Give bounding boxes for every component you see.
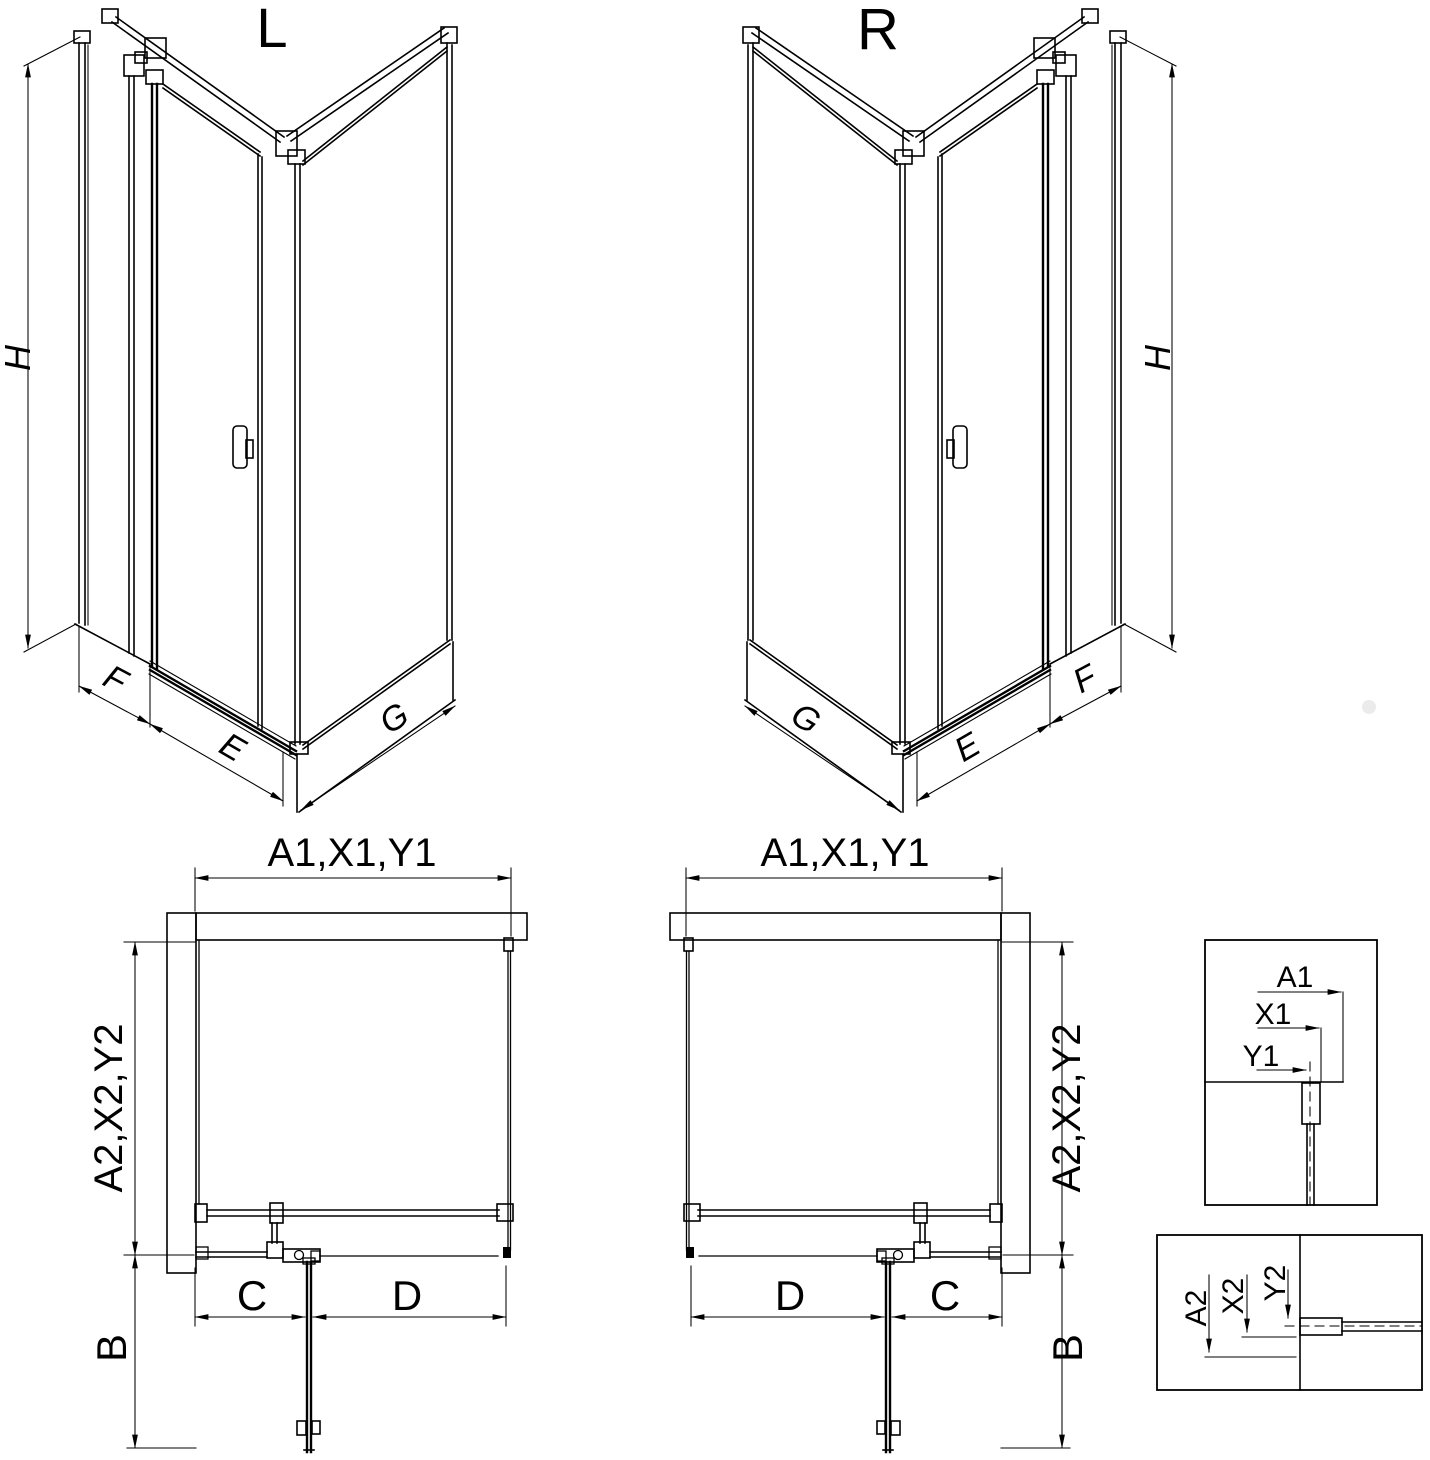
dim-g-left: G — [373, 695, 415, 741]
detail-view-vertical: A2 X2 Y2 — [1157, 1235, 1422, 1390]
plan-right-c-label: C — [930, 1272, 960, 1319]
plan-right-b-label: B — [1044, 1334, 1091, 1362]
plan-right-depth-label: A2,X2,Y2 — [1045, 1023, 1089, 1192]
dim-e-left: E — [213, 725, 252, 769]
dim-h-right: H — [1137, 344, 1178, 371]
dim-h-left: H — [0, 344, 38, 371]
drawing-canvas: A1 X1 Y1 A2 X2 Y2 L H F E G R H F E G A1… — [0, 0, 1430, 1460]
plan-right-d-label: D — [775, 1272, 805, 1319]
plan-left-depth-label: A2,X2,Y2 — [87, 1023, 131, 1192]
iso-view-right-graphics — [743, 9, 1176, 812]
plan-right-width-label: A1,X1,Y1 — [760, 831, 929, 875]
dim-e-right: E — [948, 725, 987, 769]
plan-left-c-label: C — [237, 1272, 267, 1319]
detail-view-horizontal: A1 X1 Y1 — [1205, 940, 1377, 1205]
shower-enclosure-technical-drawing: A1 X1 Y1 A2 X2 Y2 L H F E G R H F E G A1… — [0, 0, 1430, 1460]
dim-g-right: G — [785, 695, 827, 741]
dim-f-left: F — [97, 658, 135, 702]
detail-bottom-label-a2: A2 — [1180, 1290, 1213, 1327]
detail-top-label-y1: Y1 — [1243, 1040, 1280, 1073]
detail-bottom-label-x2: X2 — [1217, 1278, 1250, 1315]
iso-view-left — [24, 9, 457, 812]
plan-view-right-graphics — [670, 868, 1073, 1452]
view-label-right: R — [857, 0, 899, 62]
plan-view-left — [124, 868, 527, 1452]
detail-bottom-label-y2: Y2 — [1259, 1265, 1292, 1302]
dim-f-right: F — [1067, 657, 1105, 701]
detail-top-label-a1: A1 — [1277, 961, 1314, 994]
plan-left-width-label: A1,X1,Y1 — [267, 831, 436, 875]
view-label-left: L — [256, 0, 287, 59]
plan-left-b-label: B — [88, 1334, 135, 1362]
watermark-dot — [1362, 700, 1376, 714]
plan-left-d-label: D — [392, 1272, 422, 1319]
detail-top-label-x1: X1 — [1255, 998, 1292, 1031]
